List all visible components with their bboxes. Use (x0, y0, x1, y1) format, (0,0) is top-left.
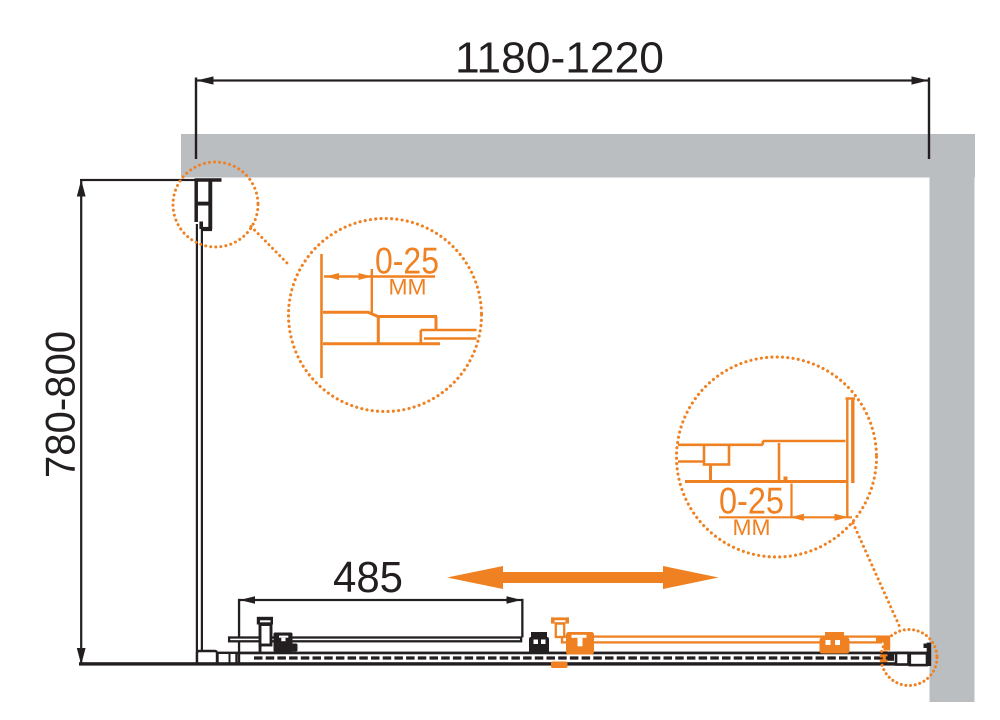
svg-text:485: 485 (333, 553, 403, 602)
svg-text:MM: MM (733, 515, 771, 540)
svg-text:1180-1220: 1180-1220 (455, 34, 664, 83)
svg-text:780-800: 780-800 (37, 331, 84, 478)
svg-text:MM: MM (389, 275, 427, 300)
